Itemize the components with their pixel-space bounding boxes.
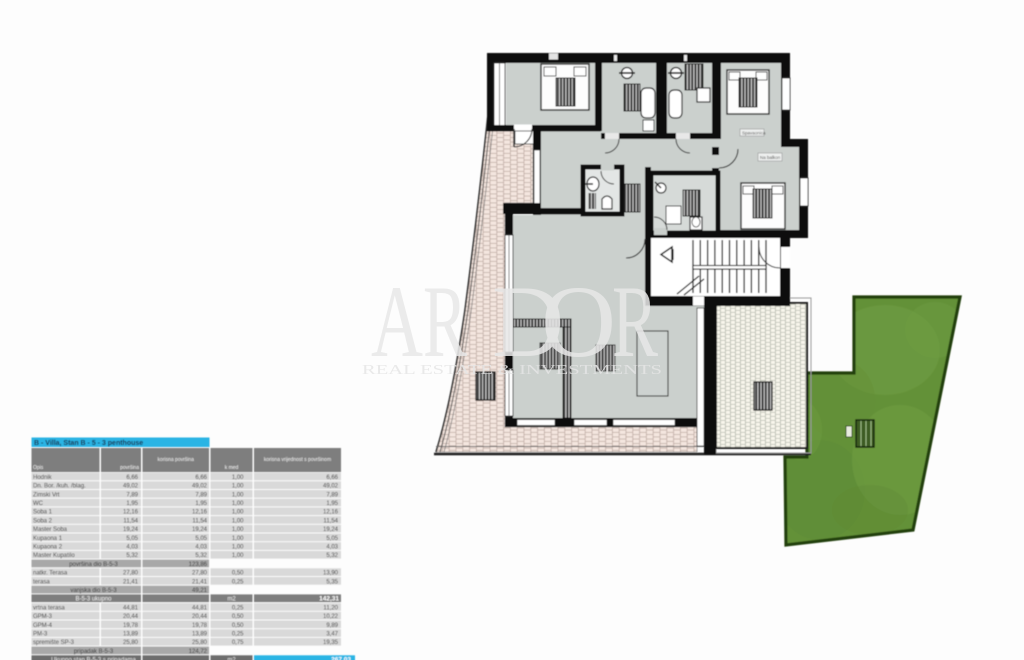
svg-text:10,22: 10,22 — [323, 614, 339, 620]
svg-text:1,00: 1,00 — [232, 527, 244, 533]
svg-text:PM-3: PM-3 — [33, 632, 48, 638]
svg-text:11,20: 11,20 — [323, 605, 338, 611]
svg-text:1,00: 1,00 — [232, 484, 244, 490]
svg-text:13,89: 13,89 — [192, 632, 208, 638]
svg-text:površina dio B-5-3: površina dio B-5-3 — [69, 562, 118, 568]
svg-text:6,66: 6,66 — [195, 475, 207, 481]
svg-text:1,00: 1,00 — [232, 492, 244, 498]
svg-text:7,89: 7,89 — [195, 492, 207, 498]
svg-text:5,32: 5,32 — [195, 553, 207, 559]
svg-text:vanjska dio B-5-3: vanjska dio B-5-3 — [70, 588, 117, 594]
svg-text:49,02: 49,02 — [123, 484, 139, 490]
svg-text:13,89: 13,89 — [123, 632, 139, 638]
svg-text:Zimski Vrt: Zimski Vrt — [33, 492, 60, 498]
svg-text:0,25: 0,25 — [232, 579, 244, 585]
svg-text:12,16: 12,16 — [192, 510, 208, 516]
svg-text:terasa: terasa — [33, 579, 50, 585]
svg-text:12,16: 12,16 — [123, 510, 139, 516]
svg-text:Soba 2: Soba 2 — [33, 518, 53, 524]
svg-text:27,80: 27,80 — [123, 571, 139, 577]
svg-text:O: O — [541, 265, 616, 379]
svg-text:5,32: 5,32 — [326, 553, 338, 559]
svg-text:49,21: 49,21 — [192, 588, 208, 594]
svg-text:11,54: 11,54 — [123, 518, 138, 524]
svg-text:21,41: 21,41 — [192, 579, 208, 585]
svg-text:4,03: 4,03 — [126, 545, 138, 551]
svg-text:19,24: 19,24 — [123, 527, 139, 533]
svg-text:1,95: 1,95 — [326, 501, 338, 507]
svg-text:k med: k med — [225, 465, 239, 471]
svg-text:Kupaona 1: Kupaona 1 — [33, 536, 63, 542]
svg-text:1,00: 1,00 — [232, 545, 244, 551]
svg-text:123,86: 123,86 — [189, 562, 208, 568]
svg-text:površina: površina — [120, 465, 139, 471]
svg-text:0,25: 0,25 — [232, 632, 244, 638]
svg-text:7,89: 7,89 — [326, 492, 338, 498]
svg-text:1,95: 1,95 — [195, 501, 207, 507]
svg-text:1,00: 1,00 — [232, 536, 244, 542]
svg-text:4,03: 4,03 — [195, 545, 207, 551]
svg-text:REAL ESTATE & INVESTMENTS: REAL ESTATE & INVESTMENTS — [362, 363, 662, 378]
svg-text:7,89: 7,89 — [126, 492, 138, 498]
svg-text:Kupaona 2: Kupaona 2 — [33, 545, 63, 551]
svg-text:1,00: 1,00 — [232, 475, 244, 481]
svg-text:A: A — [371, 265, 423, 379]
svg-text:13,90: 13,90 — [323, 571, 339, 577]
svg-text:Hodnik: Hodnik — [33, 475, 53, 481]
svg-text:natkr. Terasa: natkr. Terasa — [33, 571, 68, 577]
svg-text:0,50: 0,50 — [232, 623, 244, 629]
svg-text:Dn. Bor. /kuh. /blag.: Dn. Bor. /kuh. /blag. — [33, 484, 86, 490]
svg-text:vrtna terasa: vrtna terasa — [33, 605, 65, 611]
svg-text:44,81: 44,81 — [192, 605, 208, 611]
svg-text:0,50: 0,50 — [232, 571, 244, 577]
svg-text:1,95: 1,95 — [126, 501, 138, 507]
svg-text:5,35: 5,35 — [326, 579, 338, 585]
svg-text:Opis: Opis — [33, 465, 44, 471]
svg-text:0,50: 0,50 — [232, 614, 244, 620]
svg-text:25,80: 25,80 — [123, 640, 139, 646]
svg-text:25,80: 25,80 — [192, 640, 208, 646]
svg-text:pripadak B-5-3: pripadak B-5-3 — [74, 649, 114, 655]
svg-text:19,35: 19,35 — [323, 640, 339, 646]
svg-text:B-5-3 ukupno: B-5-3 ukupno — [75, 597, 112, 603]
svg-text:5,05: 5,05 — [195, 536, 207, 542]
svg-text:1,00: 1,00 — [232, 553, 244, 559]
svg-text:124,72: 124,72 — [189, 649, 208, 655]
svg-text:0,75: 0,75 — [232, 640, 244, 646]
svg-text:Master Soba: Master Soba — [33, 527, 68, 533]
svg-text:44,81: 44,81 — [123, 605, 139, 611]
svg-text:WC: WC — [33, 501, 44, 507]
svg-text:1,00: 1,00 — [232, 501, 244, 507]
svg-text:12,16: 12,16 — [323, 510, 339, 516]
svg-text:korisna vrijednost s površinom: korisna vrijednost s površinom — [264, 457, 331, 463]
svg-text:GPM-3: GPM-3 — [33, 614, 53, 620]
svg-text:3,47: 3,47 — [326, 632, 338, 638]
svg-text:20,44: 20,44 — [192, 614, 208, 620]
svg-text:20,44: 20,44 — [123, 614, 139, 620]
svg-text:11,54: 11,54 — [192, 518, 207, 524]
svg-text:1,00: 1,00 — [232, 510, 244, 516]
svg-text:GPM-4: GPM-4 — [33, 623, 53, 629]
svg-text:B - Villa, Stan B - 5 - 3 pent: B - Villa, Stan B - 5 - 3 penthouse — [34, 440, 143, 447]
svg-text:267,03: 267,03 — [331, 657, 351, 660]
svg-text:Master Kupatilo: Master Kupatilo — [33, 553, 75, 559]
svg-text:49,02: 49,02 — [192, 484, 208, 490]
svg-text:R: R — [612, 265, 658, 379]
svg-text:4,03: 4,03 — [326, 545, 338, 551]
svg-text:11,54: 11,54 — [323, 518, 338, 524]
svg-text:Na balkon: Na balkon — [760, 155, 781, 160]
svg-text:R: R — [423, 265, 467, 379]
svg-text:19,78: 19,78 — [123, 623, 139, 629]
svg-text:5,05: 5,05 — [126, 536, 138, 542]
svg-text:m2: m2 — [227, 597, 236, 603]
svg-text:142,31: 142,31 — [319, 596, 339, 603]
svg-text:Soba 1: Soba 1 — [33, 510, 53, 516]
svg-text:korisna površina: korisna površina — [158, 457, 195, 463]
svg-text:5,05: 5,05 — [326, 536, 338, 542]
svg-text:19,78: 19,78 — [192, 623, 208, 629]
svg-text:19,24: 19,24 — [323, 527, 339, 533]
svg-text:Spavaonica: Spavaonica — [742, 131, 766, 136]
svg-text:spremište SP-3: spremište SP-3 — [33, 640, 75, 646]
svg-text:49,02: 49,02 — [323, 484, 339, 490]
svg-text:5,32: 5,32 — [126, 553, 138, 559]
svg-text:19,24: 19,24 — [192, 527, 208, 533]
svg-text:9,89: 9,89 — [326, 623, 338, 629]
svg-text:6,66: 6,66 — [126, 475, 138, 481]
svg-text:27,80: 27,80 — [192, 571, 208, 577]
svg-text:21,41: 21,41 — [123, 579, 139, 585]
svg-text:0,25: 0,25 — [232, 605, 244, 611]
svg-text:1,00: 1,00 — [232, 518, 244, 524]
svg-text:6,66: 6,66 — [326, 475, 338, 481]
